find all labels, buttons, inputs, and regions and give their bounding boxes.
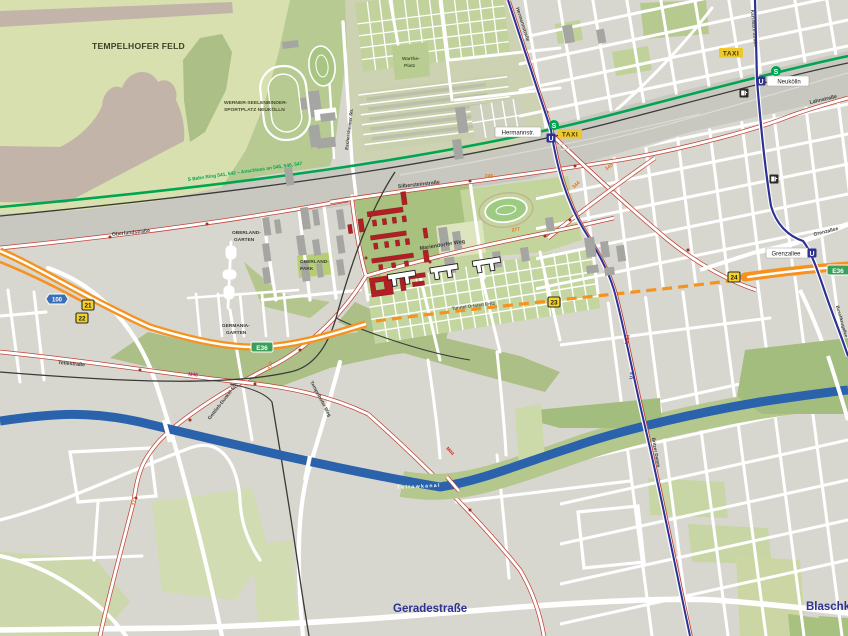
svg-text:GARTEN: GARTEN [226, 330, 247, 336]
svg-text:PARK: PARK [300, 266, 314, 272]
svg-text:TEMPELHOFER FELD: TEMPELHOFER FELD [92, 41, 185, 51]
svg-text:GERMANIA-: GERMANIA- [222, 323, 250, 329]
svg-text:100: 100 [52, 298, 63, 304]
svg-text:Geradestraße: Geradestraße [393, 603, 467, 615]
svg-text:S: S [552, 123, 557, 130]
svg-text:TAXI: TAXI [562, 132, 578, 139]
svg-text:Neukölln: Neukölln [777, 80, 800, 86]
svg-text:M46: M46 [188, 372, 199, 379]
svg-text:22: 22 [78, 316, 86, 323]
svg-text:24: 24 [730, 275, 738, 282]
svg-text:Grenzallee: Grenzallee [771, 252, 801, 258]
svg-text:277: 277 [511, 226, 520, 233]
svg-text:21: 21 [84, 303, 92, 310]
svg-text:E36: E36 [832, 268, 844, 275]
svg-text:S: S [774, 69, 779, 76]
svg-text:Platz: Platz [404, 63, 416, 69]
svg-text:Warthe-: Warthe- [402, 56, 420, 62]
svg-text:23: 23 [550, 300, 558, 307]
svg-text:SPORTPLATZ NEUKÖLLN: SPORTPLATZ NEUKÖLLN [224, 106, 285, 113]
svg-text:E36: E36 [256, 345, 268, 352]
svg-text:246: 246 [485, 174, 494, 180]
svg-text:TAXI: TAXI [723, 51, 739, 58]
svg-text:OBERLAND-: OBERLAND- [232, 230, 261, 236]
svg-text:OBERLAND-: OBERLAND- [300, 259, 329, 265]
svg-text:U: U [758, 79, 763, 86]
svg-text:WERNER-SEELENBINDER-: WERNER-SEELENBINDER- [224, 100, 288, 106]
svg-text:U: U [548, 136, 553, 143]
svg-text:U: U [809, 251, 814, 258]
svg-text:GARTEN: GARTEN [234, 237, 255, 243]
svg-text:Hermannstr.: Hermannstr. [502, 131, 535, 137]
svg-text:Blaschko: Blaschko [806, 601, 848, 613]
